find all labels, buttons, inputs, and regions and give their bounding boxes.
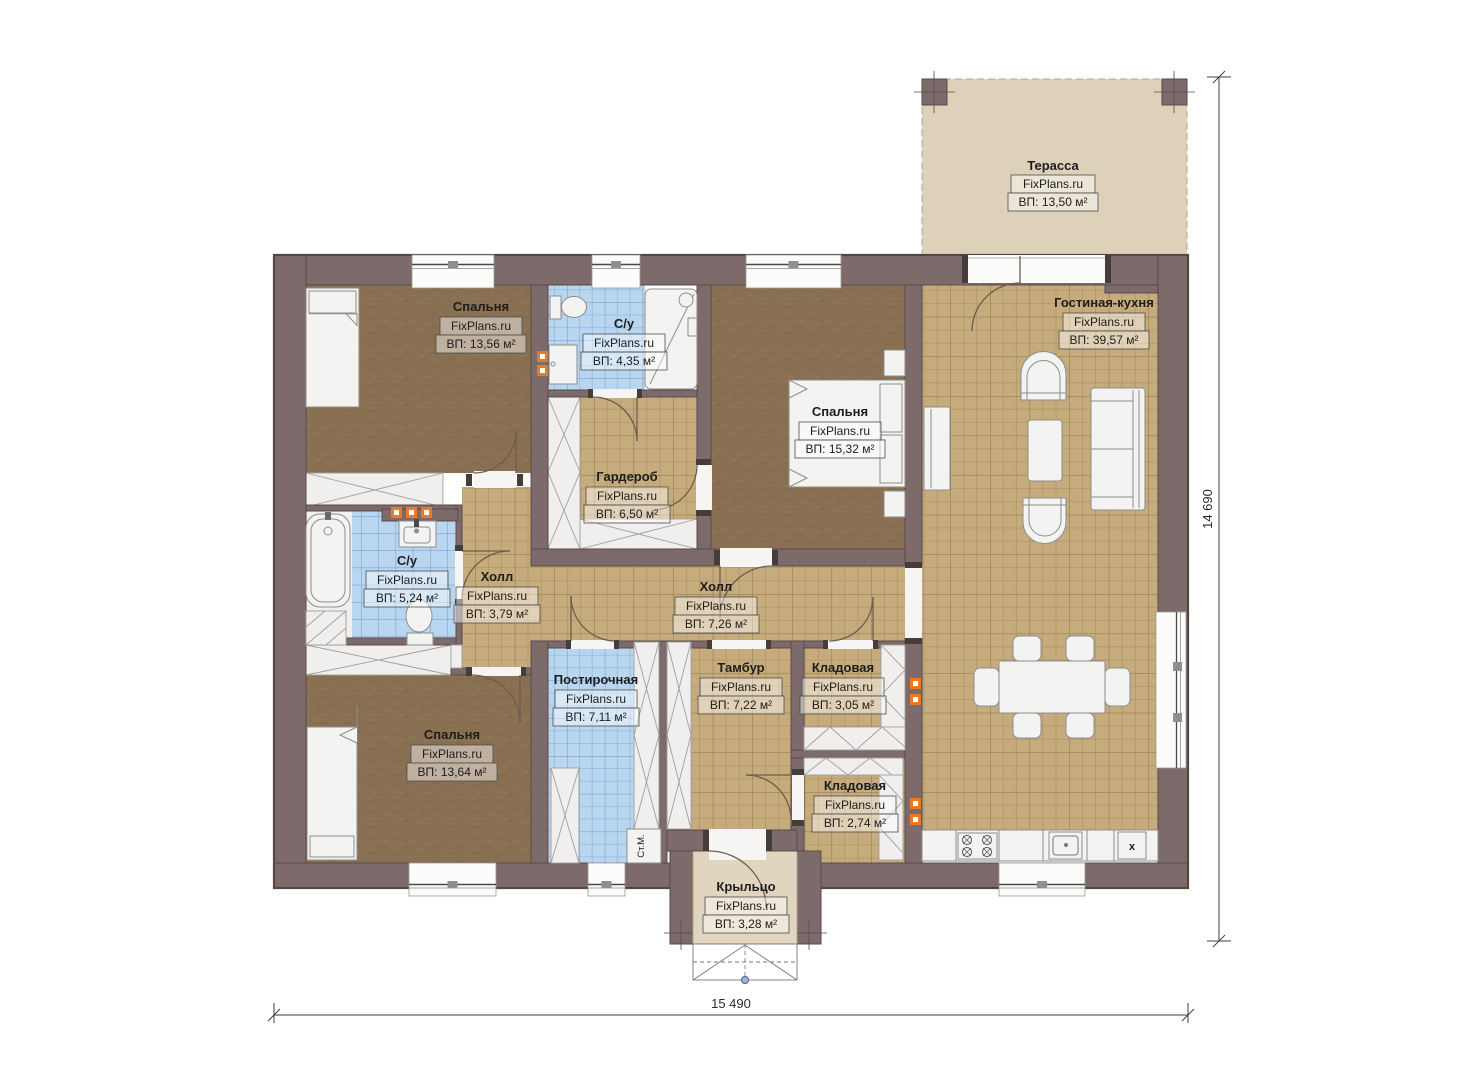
svg-text:ВП: 3,05 м²: ВП: 3,05 м²: [812, 698, 874, 712]
svg-text:ВП: 7,11 м²: ВП: 7,11 м²: [565, 710, 626, 724]
svg-text:Холл: Холл: [700, 579, 733, 594]
svg-text:Тамбур: Тамбур: [717, 660, 764, 675]
svg-text:Постирочная: Постирочная: [554, 672, 638, 687]
svg-text:Спальня: Спальня: [812, 404, 868, 419]
svg-text:FixPlans.ru: FixPlans.ru: [813, 680, 873, 694]
svg-text:FixPlans.ru: FixPlans.ru: [810, 424, 870, 438]
svg-text:FixPlans.ru: FixPlans.ru: [566, 692, 626, 706]
svg-text:FixPlans.ru: FixPlans.ru: [825, 798, 885, 812]
svg-text:Кладовая: Кладовая: [812, 660, 874, 675]
svg-text:FixPlans.ru: FixPlans.ru: [716, 899, 776, 913]
svg-text:x: x: [1129, 841, 1136, 853]
svg-text:FixPlans.ru: FixPlans.ru: [422, 747, 482, 761]
svg-text:Ст.М.: Ст.М.: [636, 834, 647, 857]
svg-text:Гардероб: Гардероб: [596, 469, 657, 484]
svg-text:ВП: 15,32 м²: ВП: 15,32 м²: [806, 442, 875, 456]
svg-text:FixPlans.ru: FixPlans.ru: [377, 573, 437, 587]
svg-text:ВП: 4,35 м²: ВП: 4,35 м²: [593, 354, 655, 368]
svg-text:ВП: 5,24 м²: ВП: 5,24 м²: [376, 591, 438, 605]
svg-text:Спальня: Спальня: [453, 299, 509, 314]
svg-text:Спальня: Спальня: [424, 727, 480, 742]
svg-text:С/у: С/у: [397, 553, 418, 568]
svg-text:FixPlans.ru: FixPlans.ru: [686, 599, 746, 613]
svg-text:Крыльцо: Крыльцо: [716, 879, 775, 894]
svg-text:14 690: 14 690: [1200, 489, 1215, 529]
svg-text:Кладовая: Кладовая: [824, 778, 886, 793]
svg-text:ВП: 6,50 м²: ВП: 6,50 м²: [596, 507, 658, 521]
svg-text:FixPlans.ru: FixPlans.ru: [594, 336, 654, 350]
svg-text:FixPlans.ru: FixPlans.ru: [711, 680, 771, 694]
svg-text:ВП: 3,28 м²: ВП: 3,28 м²: [715, 917, 777, 931]
svg-text:FixPlans.ru: FixPlans.ru: [1023, 177, 1083, 191]
svg-text:ВП: 13,56 м²: ВП: 13,56 м²: [447, 337, 516, 351]
svg-text:ВП: 7,22 м²: ВП: 7,22 м²: [710, 698, 772, 712]
svg-text:FixPlans.ru: FixPlans.ru: [597, 489, 657, 503]
svg-text:ВП: 13,50 м²: ВП: 13,50 м²: [1019, 195, 1088, 209]
svg-text:FixPlans.ru: FixPlans.ru: [451, 319, 511, 333]
svg-text:Гостиная-кухня: Гостиная-кухня: [1054, 295, 1154, 310]
svg-text:С/у: С/у: [614, 316, 635, 331]
svg-text:15 490: 15 490: [711, 996, 751, 1011]
svg-text:ВП: 39,57 м²: ВП: 39,57 м²: [1070, 333, 1139, 347]
svg-text:Холл: Холл: [481, 569, 514, 584]
svg-text:ВП: 7,26 м²: ВП: 7,26 м²: [685, 617, 747, 631]
svg-text:FixPlans.ru: FixPlans.ru: [467, 589, 527, 603]
svg-text:ВП: 2,74 м²: ВП: 2,74 м²: [824, 816, 886, 830]
svg-text:Терасса: Терасса: [1027, 158, 1079, 173]
svg-text:ВП: 3,79 м²: ВП: 3,79 м²: [466, 607, 528, 621]
svg-text:FixPlans.ru: FixPlans.ru: [1074, 315, 1134, 329]
svg-text:ВП: 13,64 м²: ВП: 13,64 м²: [418, 765, 487, 779]
